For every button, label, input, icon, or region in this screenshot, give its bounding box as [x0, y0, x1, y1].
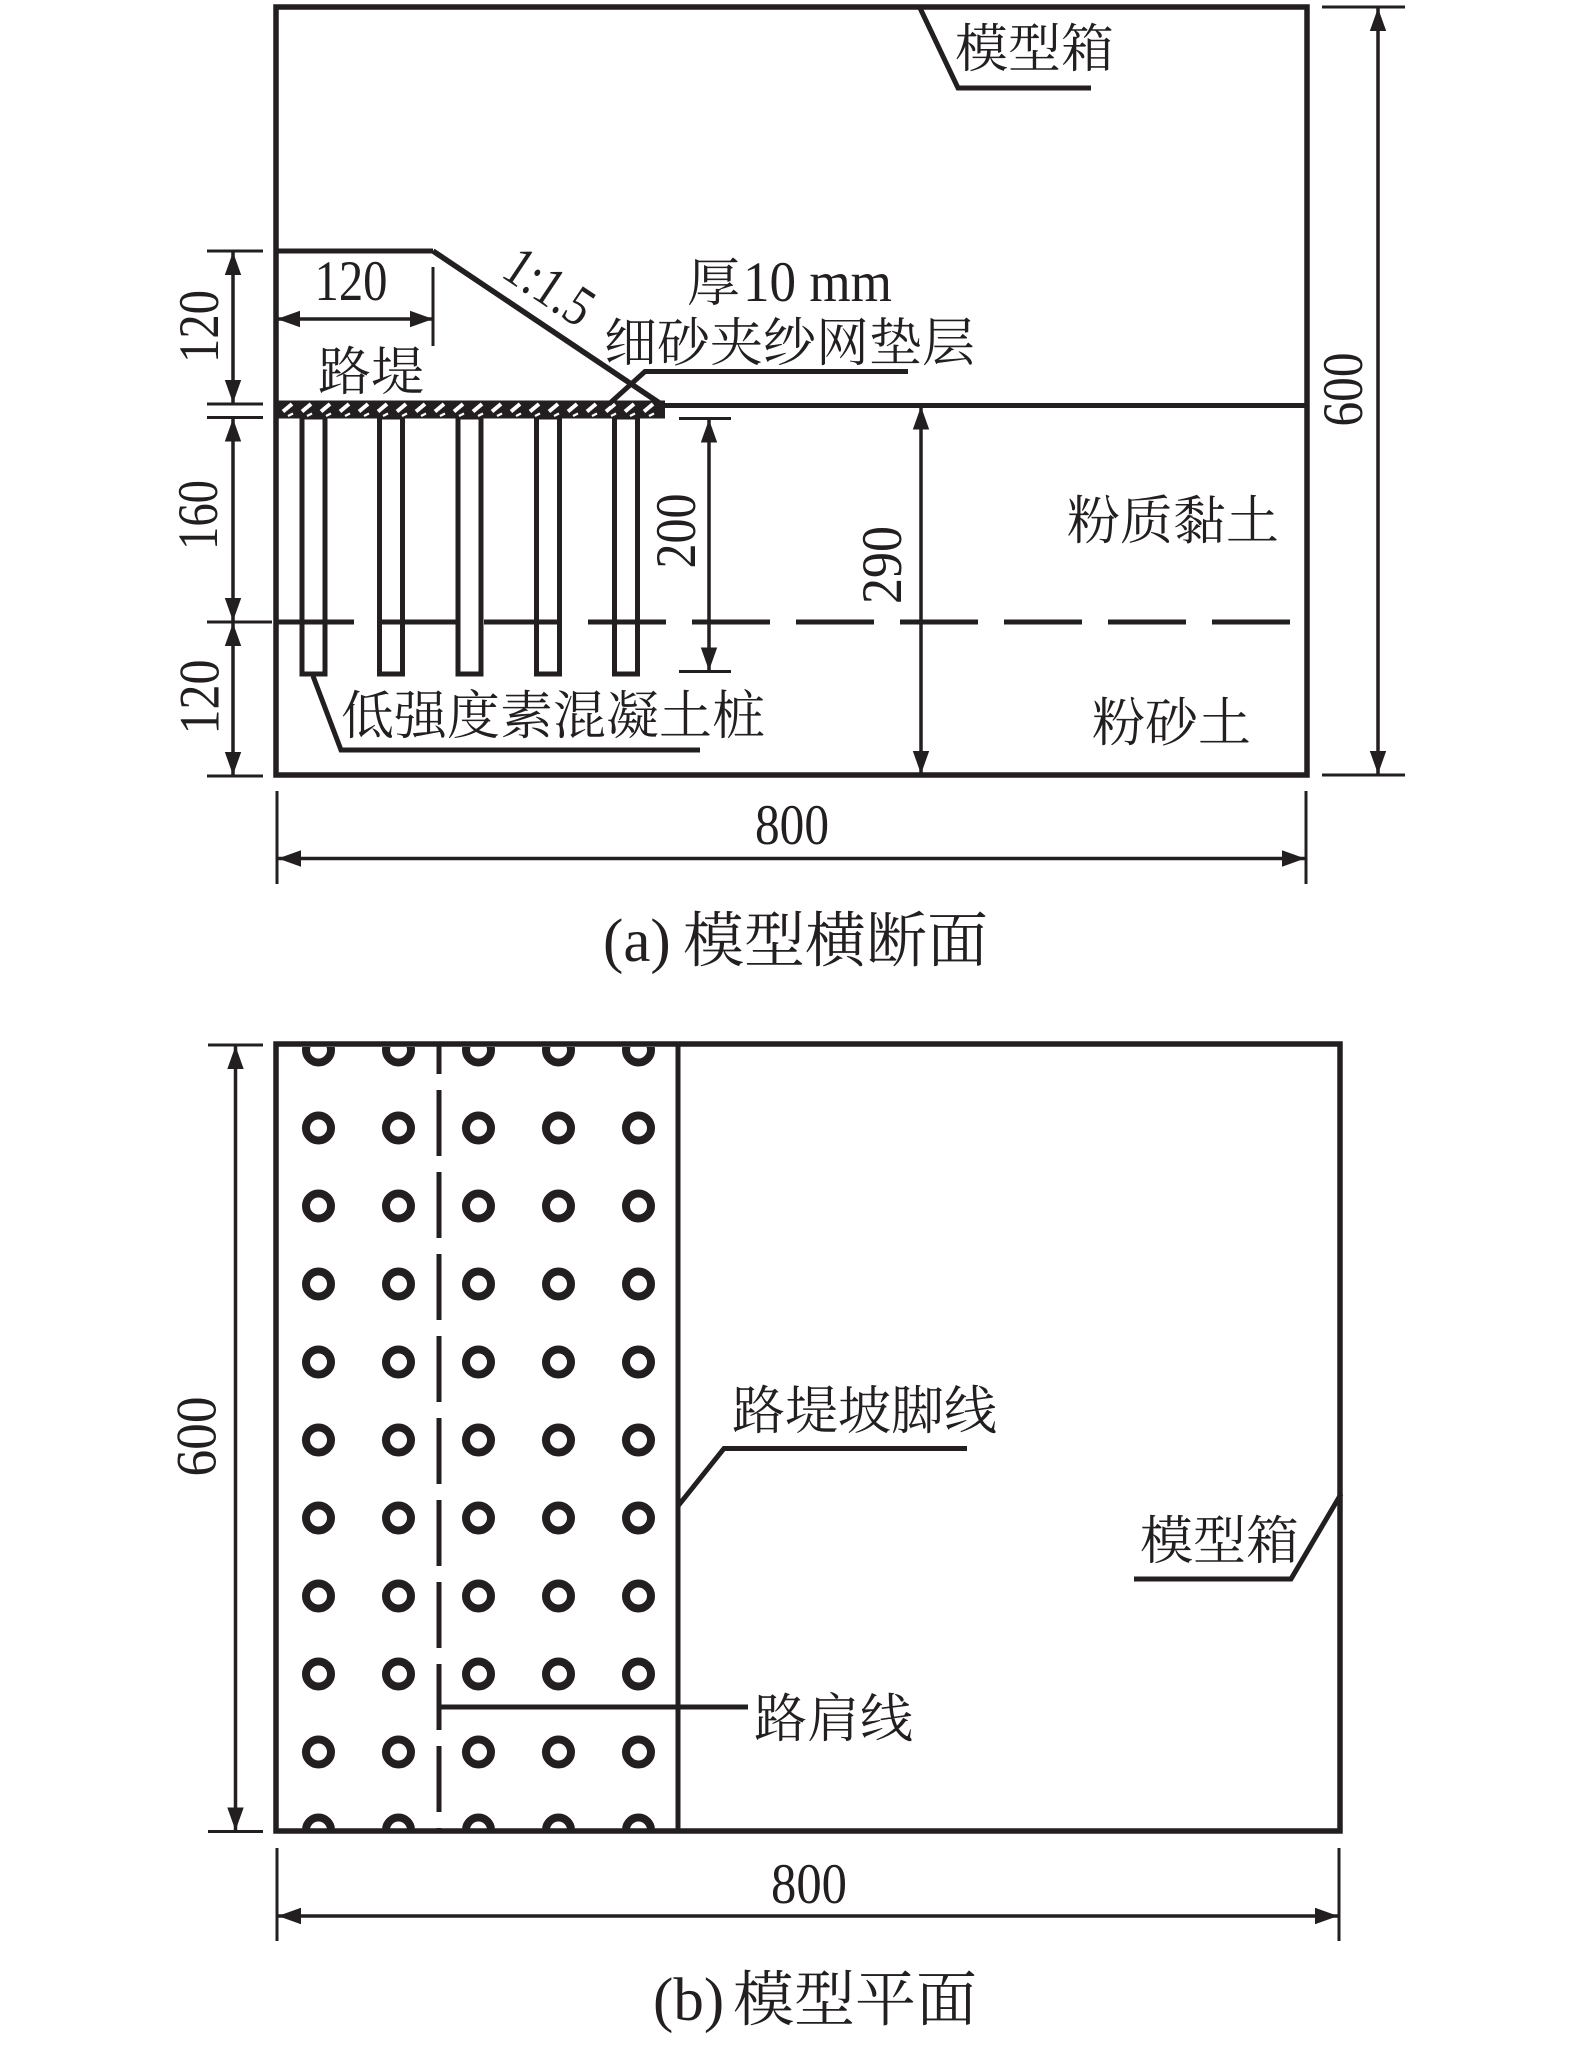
svg-text:600: 600	[1312, 353, 1375, 427]
svg-text:200: 200	[645, 494, 708, 569]
svg-text:800: 800	[771, 1853, 847, 1916]
svg-text:(a): (a)	[603, 908, 671, 975]
svg-text:160: 160	[167, 480, 230, 550]
svg-text:600: 600	[166, 1397, 229, 1477]
svg-text:(b): (b)	[653, 1967, 724, 2034]
svg-text:120: 120	[169, 660, 232, 735]
svg-text:800: 800	[755, 794, 829, 857]
svg-text:290: 290	[851, 526, 914, 604]
svg-text:120: 120	[315, 250, 388, 313]
svg-text:10 mm: 10 mm	[743, 251, 892, 314]
svg-text:120: 120	[168, 290, 231, 363]
